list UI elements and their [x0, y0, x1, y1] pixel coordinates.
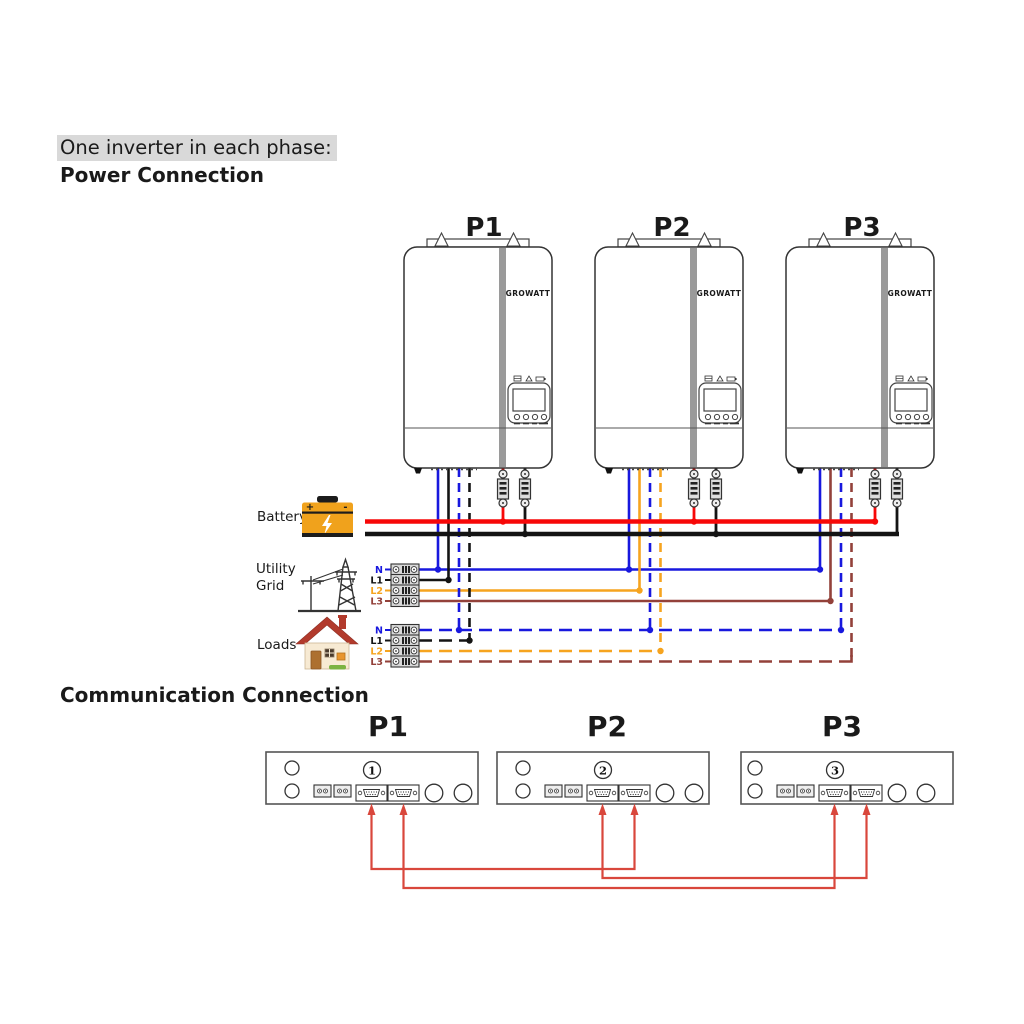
loads-house-icon — [296, 615, 358, 670]
loads-l3-label: L3 — [370, 657, 383, 668]
comm-p1-number: 1 — [368, 764, 376, 778]
inverter-p3 — [786, 233, 934, 474]
comm-p2-number: 2 — [599, 764, 607, 778]
battery-icon: + - — [302, 496, 353, 537]
comm-p2-label: P2 — [587, 710, 627, 743]
cable-p2p1-to-p3p2 — [603, 813, 867, 878]
grid-l2-label: L2 — [370, 586, 383, 597]
arrow-p2-port1 — [599, 804, 607, 816]
grid-l1-label: L1 — [370, 576, 383, 587]
arrow-p3-port2 — [863, 804, 871, 816]
utility-grid-icon — [298, 560, 361, 612]
junction-dots — [435, 518, 878, 654]
inverter-p1 — [404, 233, 552, 474]
loads-l2-label: L2 — [370, 647, 383, 658]
cable-p1p1-to-p2p2 — [372, 813, 635, 869]
manual-page: One inverter in each phase: Power Connec… — [0, 0, 1024, 1024]
comm-panel-p1: 1 — [266, 752, 478, 804]
inverter-p3-wires — [820, 468, 897, 657]
wiring-diagram: GROWATT — [0, 0, 1024, 1024]
comm-panel-p3: 3 — [741, 752, 953, 804]
loads-rows — [419, 630, 852, 662]
comm-p1-label: P1 — [368, 710, 408, 743]
inverter-p2-wires — [629, 468, 716, 651]
arrow-p2-port2 — [631, 804, 639, 816]
arrow-p3-port1 — [831, 804, 839, 816]
cable-p1p2-to-p3p1 — [404, 813, 835, 888]
utility-grid-rows — [419, 570, 831, 602]
grid-n-label: N — [375, 565, 383, 576]
comm-p3-label: P3 — [822, 710, 862, 743]
loads-l1-label: L1 — [370, 636, 383, 647]
comm-panel-p2: 2 — [497, 752, 709, 804]
loads-terminals: N L1 L2 L3 — [370, 625, 419, 669]
arrow-p1-port2 — [400, 804, 408, 816]
battery-minus-sign: - — [343, 502, 347, 513]
inverter-p1-wires — [438, 468, 525, 641]
loads-n-label: N — [375, 626, 383, 637]
grid-l3-label: L3 — [370, 597, 383, 608]
arrow-p1-port1 — [368, 804, 376, 816]
battery-plus-sign: + — [306, 502, 314, 513]
inverter-p2 — [595, 233, 743, 474]
comm-cables — [368, 804, 871, 889]
utility-grid-terminals: N L1 L2 L3 — [370, 564, 419, 608]
comm-p3-number: 3 — [831, 764, 839, 778]
